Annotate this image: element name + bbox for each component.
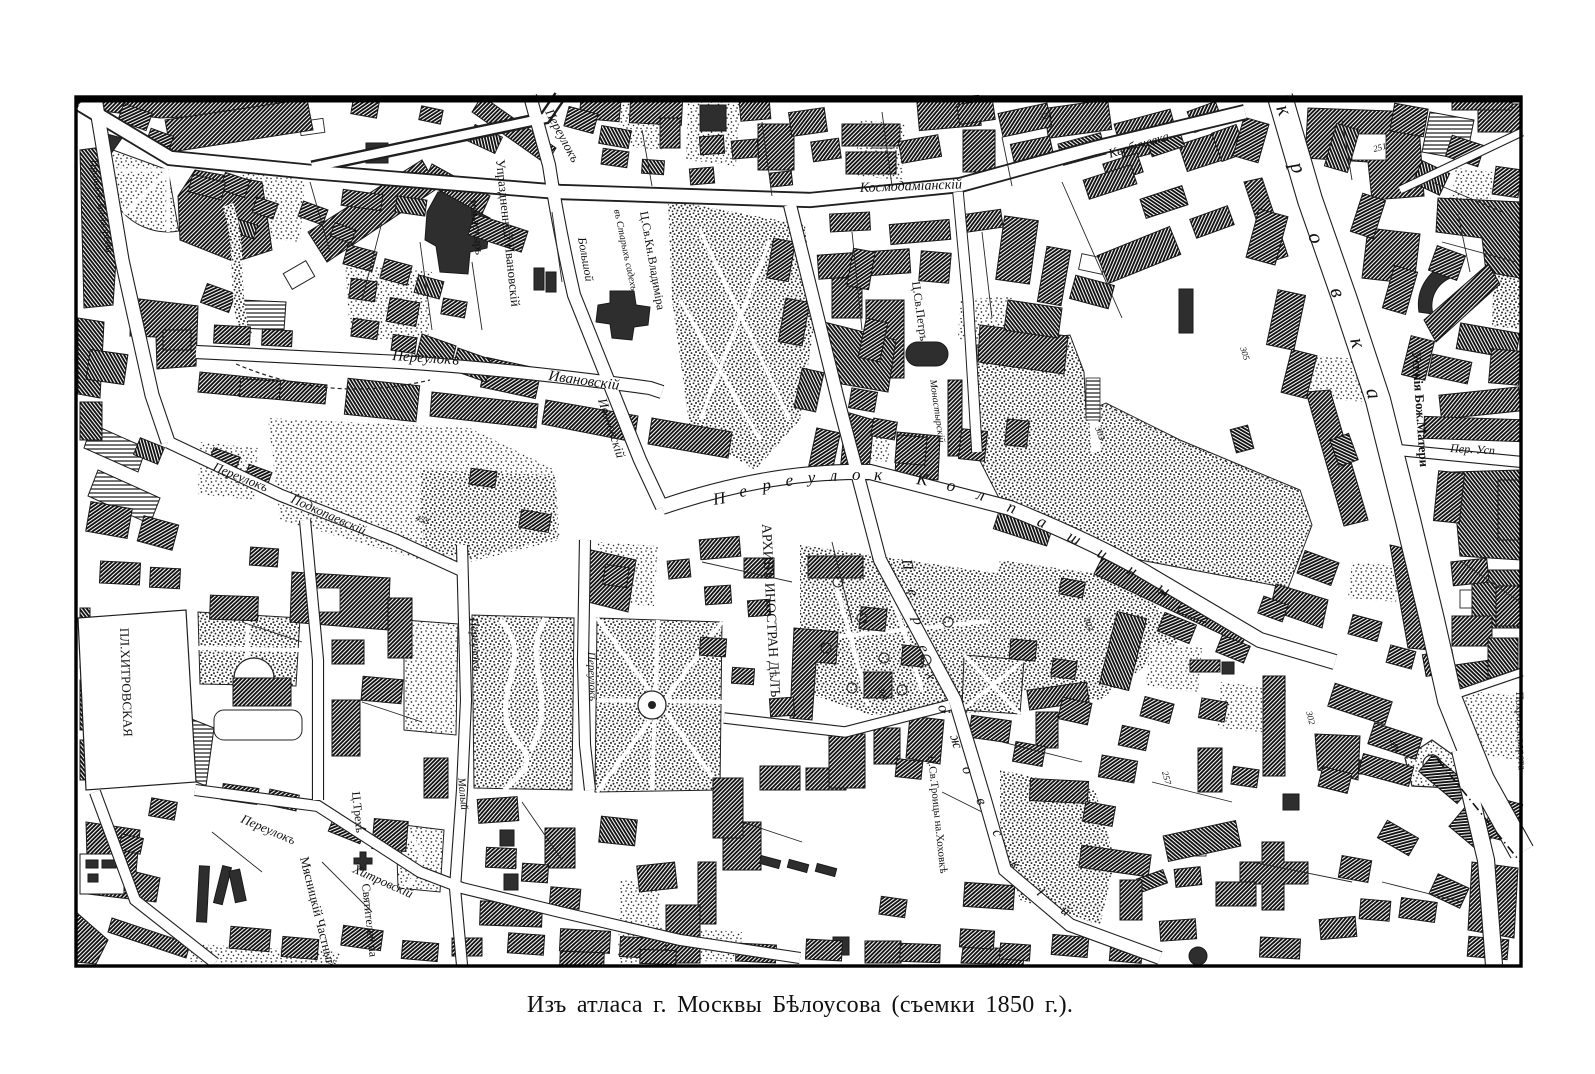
svg-text:Переулокъ: Переулокъ xyxy=(585,651,599,702)
svg-text:Пер. Усп: Пер. Усп xyxy=(1449,441,1496,457)
svg-text:л: л xyxy=(828,466,837,485)
svg-text:Изъ атласа г. Москвы Бѣлоусова: Изъ атласа г. Москвы Бѣлоусова (съемки 1… xyxy=(527,992,1073,1018)
svg-text:о: о xyxy=(852,465,861,484)
